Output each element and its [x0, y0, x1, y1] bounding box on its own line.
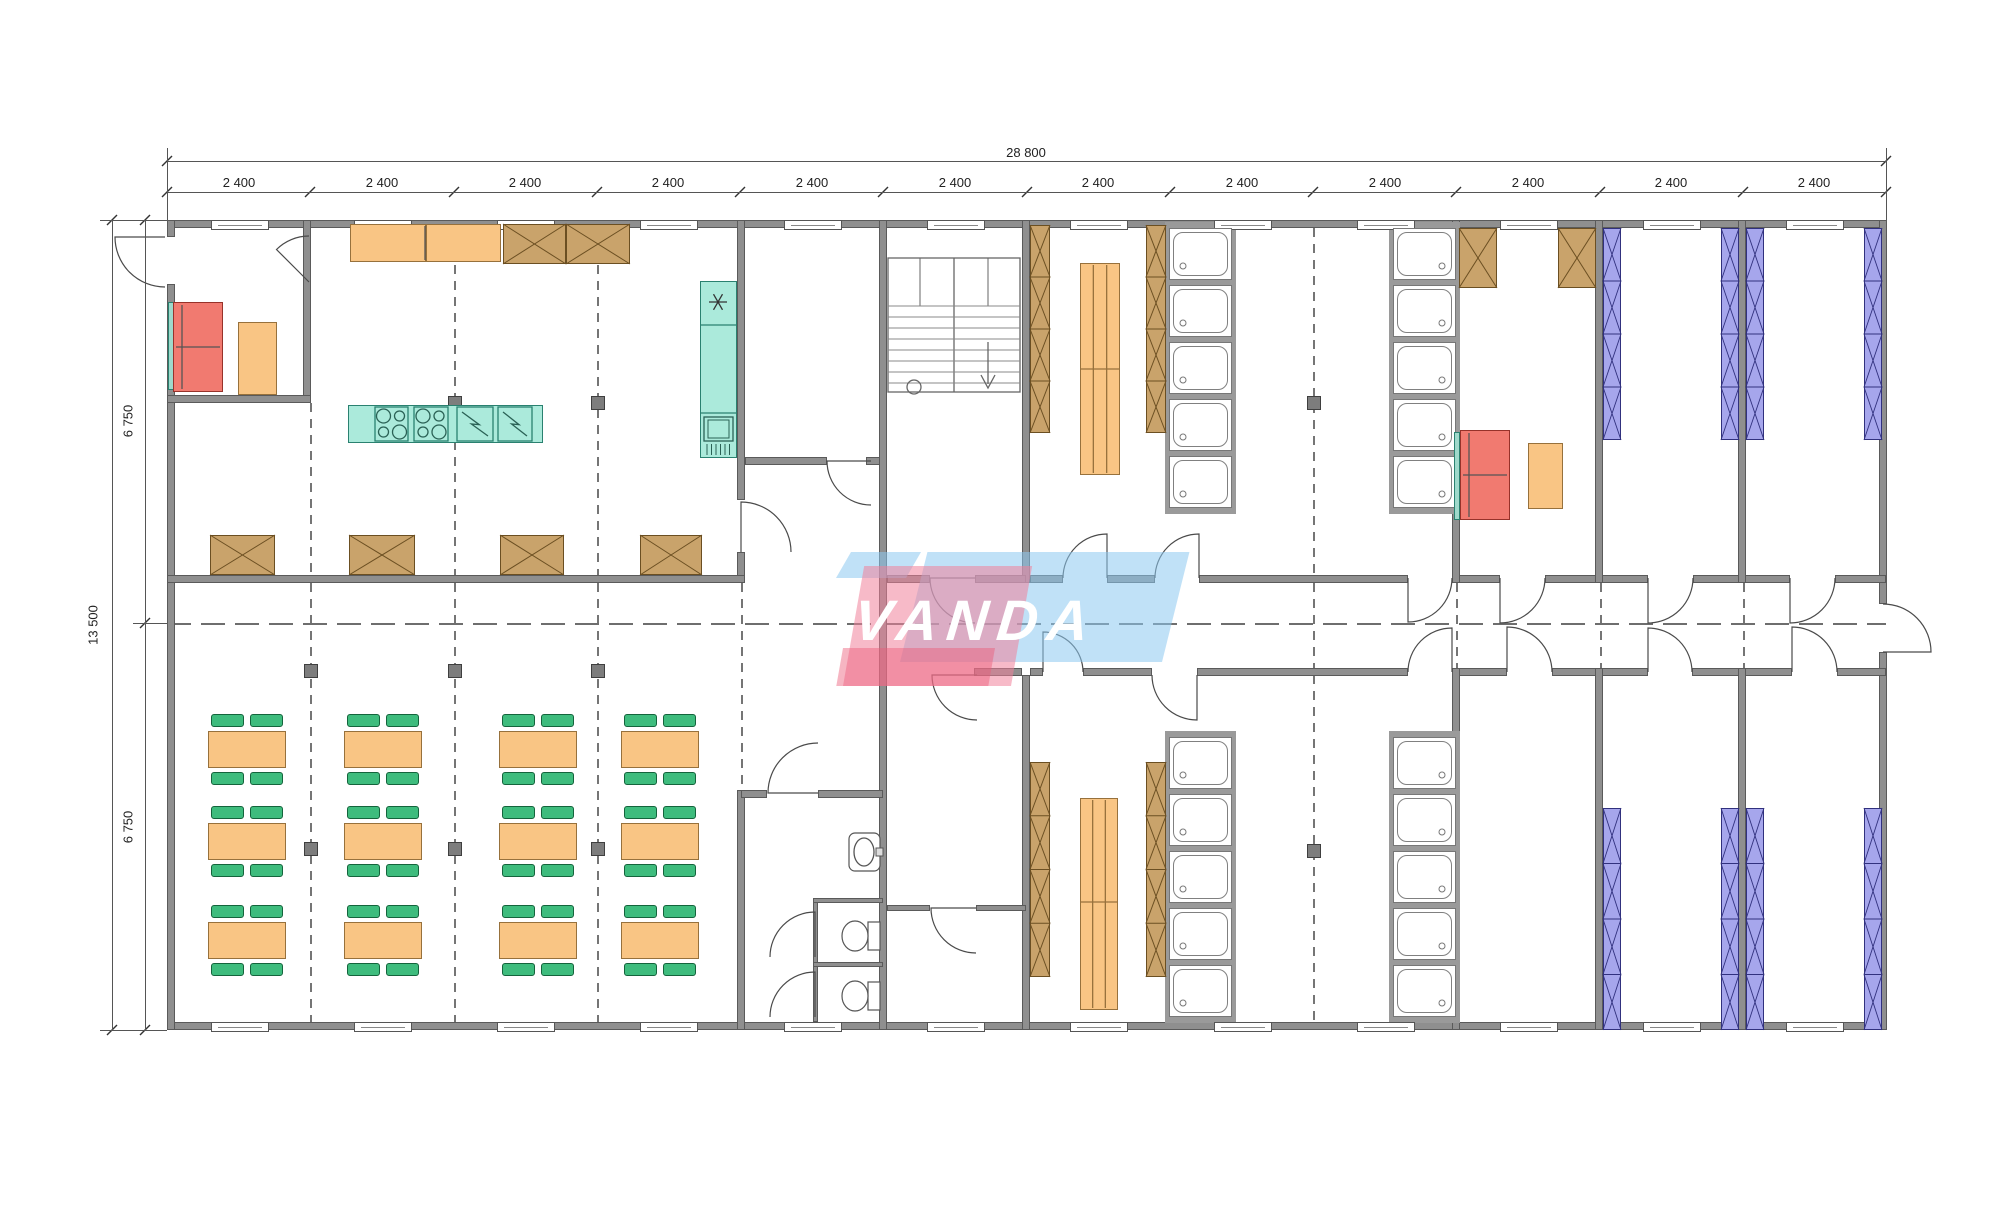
grid-line-vertical: [597, 265, 599, 575]
wall: [303, 220, 311, 403]
window: [354, 1022, 412, 1032]
structural-column: [1307, 844, 1321, 858]
shower-stall: [1169, 851, 1232, 903]
shower-tray: [1173, 912, 1228, 956]
door-swing: [1790, 578, 1835, 623]
kitchen-counter: [238, 322, 277, 395]
shower-stall: [1169, 908, 1232, 960]
wall: [813, 962, 883, 967]
door-swing: [115, 237, 165, 287]
door-swing: [827, 461, 871, 505]
structural-column: [591, 842, 605, 856]
shower-tray: [1173, 232, 1228, 276]
locker-strip: [1146, 762, 1166, 977]
kitchen-counter: [1528, 443, 1563, 509]
door-swing: [1155, 534, 1199, 578]
bunk-bed: [1864, 808, 1882, 1030]
grid-line-vertical: [454, 583, 456, 1022]
chair: [211, 963, 244, 976]
chair: [347, 864, 380, 877]
wall: [974, 668, 1022, 676]
shower-tray: [1173, 741, 1228, 785]
toilet-bowl: [842, 921, 868, 951]
chair: [347, 963, 380, 976]
shower-stall: [1393, 737, 1456, 789]
window: [640, 1022, 698, 1032]
locker-strip: [1030, 762, 1050, 977]
wall: [1452, 668, 1507, 676]
chair: [502, 864, 535, 877]
structural-column: [591, 396, 605, 410]
shower-tray: [1173, 969, 1228, 1013]
wall: [1738, 668, 1746, 1030]
chair: [663, 806, 696, 819]
storage-cabinet: [210, 535, 275, 575]
window: [1500, 1022, 1558, 1032]
bunk-bed: [1746, 228, 1764, 440]
module-dimension-label: 2 400: [1079, 175, 1118, 190]
door-swing: [1063, 534, 1107, 578]
module-dimension-label: 2 400: [1223, 175, 1262, 190]
shower-stall: [1169, 794, 1232, 846]
module-dimension-label: 2 400: [363, 175, 402, 190]
chair: [386, 772, 419, 785]
storage-cabinet: [500, 535, 564, 575]
window: [784, 220, 842, 230]
door-swing: [1648, 578, 1693, 623]
structural-column: [591, 664, 605, 678]
chair: [250, 905, 283, 918]
shower-tray: [1397, 798, 1452, 842]
locker-strip: [1146, 225, 1166, 433]
door-swing: [930, 578, 975, 623]
lower-half-dimension-label: 6 750: [121, 808, 136, 847]
chair: [502, 905, 535, 918]
wall: [975, 575, 1026, 583]
door-swing: [1507, 627, 1552, 672]
window: [211, 220, 269, 230]
shower-tray: [1397, 460, 1452, 504]
wall: [1595, 668, 1603, 1030]
window: [1070, 1022, 1128, 1032]
chair: [211, 905, 244, 918]
shower-tray: [1397, 855, 1452, 899]
window: [211, 1022, 269, 1032]
grid-line-vertical: [1456, 583, 1458, 668]
bunk-bed: [1603, 808, 1621, 1030]
storage-cabinet: [640, 535, 702, 575]
plan-linework-overlay: [0, 0, 2000, 1216]
storage-cabinet: [1459, 228, 1497, 288]
shower-stall: [1169, 285, 1232, 337]
chair: [386, 905, 419, 918]
dining-table: [344, 922, 422, 959]
chair: [502, 963, 535, 976]
door-swing: [1408, 628, 1452, 672]
extension-line: [1886, 148, 1887, 220]
dining-table: [499, 922, 577, 959]
chair: [541, 772, 574, 785]
shower-tray: [1173, 460, 1228, 504]
chair: [386, 806, 419, 819]
window: [1500, 220, 1558, 230]
chair: [663, 963, 696, 976]
wall: [1197, 668, 1408, 676]
dining-table: [499, 731, 577, 768]
chair: [211, 772, 244, 785]
bunk-bed: [1603, 228, 1621, 440]
chair: [211, 806, 244, 819]
chair: [624, 864, 657, 877]
shower-tray: [1173, 346, 1228, 390]
grid-line-vertical: [1313, 583, 1315, 668]
chair: [624, 806, 657, 819]
wall: [887, 575, 930, 583]
window: [927, 220, 985, 230]
wall: [741, 790, 767, 798]
window: [927, 1022, 985, 1032]
chair: [250, 963, 283, 976]
wall: [1107, 575, 1155, 583]
kitchen-unit: [700, 281, 737, 458]
kitchen-counter: [426, 224, 501, 262]
wall: [1837, 668, 1886, 676]
wall: [1083, 668, 1152, 676]
module-dimension-label: 2 400: [1509, 175, 1548, 190]
toilet-bowl: [842, 981, 868, 1011]
wall: [887, 905, 930, 911]
chair: [663, 864, 696, 877]
chair: [541, 905, 574, 918]
shower-stall: [1393, 851, 1456, 903]
shower-tray: [1397, 403, 1452, 447]
wall: [167, 575, 745, 583]
door-swing: [1408, 578, 1452, 622]
shower-stall: [1169, 737, 1232, 789]
stair-start-marker: [907, 380, 921, 394]
storage-cabinet: [1558, 228, 1596, 288]
shower-stall: [1169, 965, 1232, 1017]
bunk-bed: [1721, 228, 1739, 440]
shower-tray: [1173, 855, 1228, 899]
shower-tray: [1397, 741, 1452, 785]
chair: [663, 772, 696, 785]
total-height-dimension-label: 13 500: [86, 602, 101, 648]
structural-column: [304, 664, 318, 678]
chair: [250, 806, 283, 819]
dining-table: [621, 823, 699, 860]
locker-strip: [1030, 225, 1050, 433]
left-overall-dimension-line: [112, 220, 113, 1030]
logo-blue-box: [900, 552, 1189, 662]
dining-table: [208, 731, 286, 768]
wall: [879, 220, 887, 1030]
door-swing: [741, 502, 791, 552]
wall: [976, 905, 1026, 911]
stair-arrow-head: [981, 375, 995, 388]
chair: [663, 714, 696, 727]
chair: [386, 864, 419, 877]
dining-table: [208, 922, 286, 959]
washbasin-bowl: [854, 838, 874, 866]
window: [1786, 1022, 1844, 1032]
door-swing: [932, 675, 977, 720]
extension-line: [167, 148, 168, 220]
chair: [211, 714, 244, 727]
storage-cabinet: [566, 224, 630, 264]
shower-stall: [1169, 399, 1232, 451]
door-swing: [1648, 628, 1692, 672]
wall: [818, 790, 883, 798]
chair: [250, 772, 283, 785]
wall: [813, 898, 818, 1022]
chair: [347, 772, 380, 785]
module-dimension-label: 2 400: [220, 175, 259, 190]
shower-stall: [1169, 228, 1232, 280]
sofa: [173, 302, 223, 392]
wall: [737, 220, 745, 500]
door-swing: [1792, 627, 1837, 672]
extension-line: [133, 623, 167, 624]
grid-line-vertical: [1600, 583, 1602, 668]
wall: [1199, 575, 1408, 583]
structural-column: [1307, 396, 1321, 410]
chair: [347, 905, 380, 918]
shower-tray: [1397, 912, 1452, 956]
window: [784, 1022, 842, 1032]
storage-cabinet: [349, 535, 415, 575]
wall: [813, 898, 883, 903]
wall: [1595, 220, 1603, 583]
window: [497, 1022, 555, 1032]
window: [1643, 1022, 1701, 1032]
door-swing: [931, 908, 976, 953]
staircase-landing: [920, 258, 988, 306]
washbasin-counter: [849, 833, 880, 871]
chair: [386, 714, 419, 727]
kitchen-counter: [350, 224, 426, 262]
module-dimension-label: 2 400: [1366, 175, 1405, 190]
dining-table: [621, 922, 699, 959]
structural-column: [448, 842, 462, 856]
wall: [1030, 668, 1043, 676]
bunk-bed: [1864, 228, 1882, 440]
door-swing: [1883, 604, 1931, 652]
dining-table: [208, 823, 286, 860]
upper-half-dimension-label: 6 750: [121, 402, 136, 441]
shower-stall: [1393, 399, 1456, 451]
chair: [386, 963, 419, 976]
dining-table: [621, 731, 699, 768]
chair: [502, 714, 535, 727]
chair: [624, 963, 657, 976]
bunk-bed: [1721, 808, 1739, 1030]
chair: [624, 905, 657, 918]
module-dimension-label: 2 400: [649, 175, 688, 190]
door-swing: [1152, 675, 1197, 720]
wall: [745, 457, 827, 465]
shower-stall: [1393, 794, 1456, 846]
kitchen-unit: [348, 405, 543, 443]
top-overall-dimension-line: [167, 161, 1886, 162]
window: [1786, 220, 1844, 230]
slatted-bench: [1080, 798, 1118, 1010]
shower-tray: [1173, 403, 1228, 447]
wall: [1835, 575, 1886, 583]
extension-line: [100, 1030, 167, 1031]
grid-line-vertical: [741, 583, 743, 790]
chair: [541, 864, 574, 877]
door-swing: [768, 743, 818, 793]
shower-tray: [1397, 346, 1452, 390]
shower-stall: [1393, 908, 1456, 960]
chair: [663, 905, 696, 918]
grid-line-vertical: [310, 403, 312, 575]
window: [1357, 1022, 1415, 1032]
grid-line-vertical: [1743, 583, 1745, 668]
structural-column: [448, 664, 462, 678]
wall: [1022, 220, 1030, 583]
chair: [541, 806, 574, 819]
chair: [541, 963, 574, 976]
shower-stall: [1393, 342, 1456, 394]
wall: [1022, 675, 1030, 1030]
module-dimension-label: 2 400: [1795, 175, 1834, 190]
wall: [1030, 575, 1063, 583]
shower-stall: [1393, 456, 1456, 508]
chair: [624, 772, 657, 785]
shower-tray: [1397, 289, 1452, 333]
dining-table: [499, 823, 577, 860]
shower-tray: [1397, 232, 1452, 276]
top-module-dimension-line: [167, 192, 1886, 193]
floor-plan-canvas: 28 800 13 500 6 750 6 750 VANDA 2 4002 4…: [0, 0, 2000, 1216]
vanda-watermark-text: VANDA: [851, 588, 1101, 654]
wall: [167, 395, 311, 403]
chair: [502, 806, 535, 819]
window: [1070, 220, 1128, 230]
shower-tray: [1173, 798, 1228, 842]
shower-stall: [1169, 342, 1232, 394]
dining-table: [344, 823, 422, 860]
shower-stall: [1393, 228, 1456, 280]
shower-stall: [1393, 965, 1456, 1017]
window: [1643, 220, 1701, 230]
logo-red-accent: [836, 648, 995, 686]
structural-column: [304, 842, 318, 856]
bunk-bed: [1746, 808, 1764, 1030]
wall: [737, 790, 745, 1030]
module-dimension-label: 2 400: [506, 175, 545, 190]
extension-line: [100, 220, 167, 221]
module-dimension-label: 2 400: [1652, 175, 1691, 190]
chair: [624, 714, 657, 727]
slatted-bench: [1080, 263, 1120, 475]
module-dimension-label: 2 400: [936, 175, 975, 190]
chair: [541, 714, 574, 727]
chair: [250, 714, 283, 727]
shower-stall: [1169, 456, 1232, 508]
door-swing: [770, 912, 815, 957]
door-swing: [770, 972, 815, 1017]
shower-tray: [1173, 289, 1228, 333]
grid-line-vertical: [310, 583, 312, 1022]
staircase-outline: [888, 258, 1020, 392]
door-swing: [1043, 632, 1083, 672]
chair: [347, 806, 380, 819]
wall: [167, 220, 175, 237]
building-center-axis: [167, 623, 1886, 625]
chair: [502, 772, 535, 785]
left-half-dimension-line: [145, 220, 146, 1030]
chair: [347, 714, 380, 727]
grid-line-vertical: [597, 583, 599, 1022]
chair: [250, 864, 283, 877]
shower-tray: [1397, 969, 1452, 1013]
storage-cabinet: [503, 224, 566, 264]
door-swing: [1500, 578, 1545, 623]
sofa: [1460, 430, 1510, 520]
total-width-dimension-label: 28 800: [1003, 145, 1049, 160]
shower-stall: [1393, 285, 1456, 337]
dining-table: [344, 731, 422, 768]
module-dimension-label: 2 400: [793, 175, 832, 190]
window: [640, 220, 698, 230]
window: [1214, 1022, 1272, 1032]
chair: [211, 864, 244, 877]
wall: [1738, 220, 1746, 583]
